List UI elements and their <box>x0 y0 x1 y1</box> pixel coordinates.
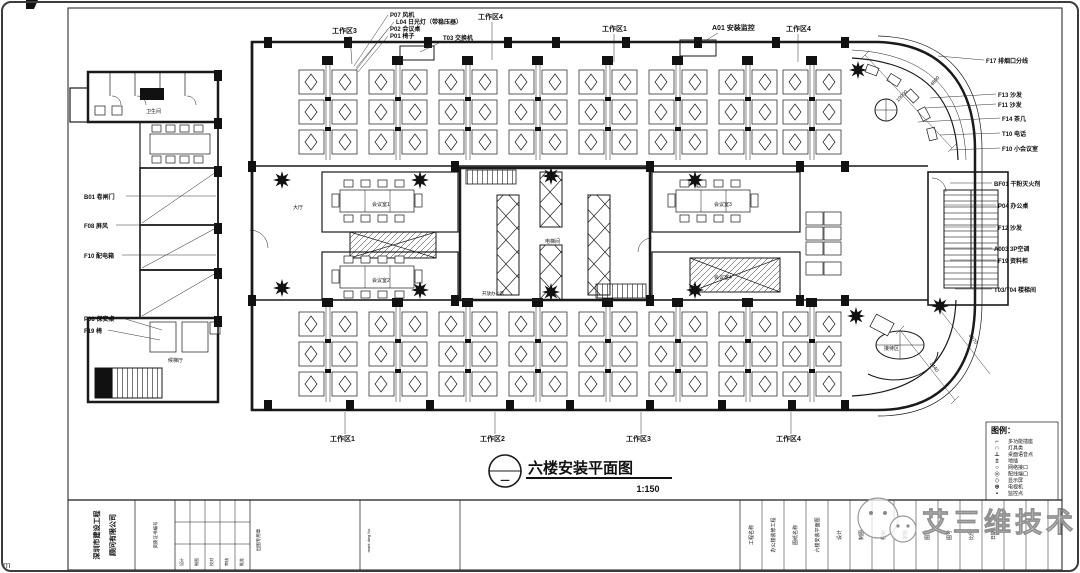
workstation-cluster <box>579 56 637 160</box>
floor-plan-canvas: 10000 4600 2440 2070 工作区3 P07 风机 L04 日光灯… <box>0 0 1080 573</box>
legend-sym-2: ⊥ <box>994 451 999 458</box>
label-reception: 接待区 <box>884 345 899 352</box>
label-lobby: 大厅 <box>293 204 303 211</box>
sign-label-2: 校对 <box>208 558 214 566</box>
workstation-cluster <box>719 56 777 160</box>
conference-table <box>332 256 422 298</box>
watermark: 艾三维技术 <box>858 498 1077 542</box>
workstation-cluster <box>439 56 497 160</box>
callout-l04: L04 日光灯（带稳压器） <box>396 18 462 26</box>
workstation-cluster <box>509 298 567 402</box>
callout-f12: F12 沙发 <box>998 224 1022 232</box>
label-meeting4: 会议室4 <box>714 274 732 281</box>
callout-f19-cabinet: F19 资料柜 <box>998 257 1028 265</box>
sign-label-1: 制图 <box>193 558 199 566</box>
callout-f10-room: F10 小会议室 <box>1002 145 1038 153</box>
dim-4600: 4600 <box>929 75 941 87</box>
workstation-cluster <box>439 298 497 402</box>
callout-t03-switch: T03 交换机 <box>443 34 473 42</box>
callout-p01: P01 椅子 <box>390 32 414 40</box>
tb-field-4: 设计 <box>836 530 843 540</box>
label-meeting3: 会议室3 <box>714 201 732 208</box>
callout-top-workzone4b: 工作区4 <box>786 24 811 33</box>
left-wing <box>70 72 220 402</box>
workstation-cluster <box>299 56 357 160</box>
callout-a01-monitor: A01 安装监控 <box>712 23 755 32</box>
workstation-cluster <box>579 298 637 402</box>
legend-label-6: 显示屏 <box>1008 478 1023 484</box>
workstations-top <box>299 56 841 160</box>
callout-p04: P04 办公桌 <box>998 202 1028 210</box>
legend-sym-7: ⊕ <box>994 485 999 491</box>
callout-f13: F13 沙发 <box>998 91 1022 99</box>
elevator-core <box>460 168 650 300</box>
legend-label-2: 桌面语音点 <box>1008 451 1033 458</box>
watermark-text: 艾三维技术 <box>922 508 1077 538</box>
legend-label-4: 网络接口 <box>1008 464 1028 471</box>
floor-plan-screenshot: 10000 4600 2440 2070 工作区3 P07 风机 L04 日光灯… <box>0 0 1080 573</box>
workstation-cluster <box>649 298 707 402</box>
legend: 图例： ⌐ 多功能插座 ∩ 灯具类 ⊥ 桌面语音点 ± 地插 ○ 网络接口 ◎ … <box>986 422 1058 500</box>
legend-label-8: 监控点 <box>1008 490 1023 497</box>
label-meeting2: 会议室2 <box>372 277 390 284</box>
sign-label-0: 设计 <box>178 558 184 566</box>
callout-f19-chair: F19 椅 <box>84 327 102 335</box>
callout-top-workzone4a: 工作区4 <box>478 12 503 21</box>
legend-label-1: 灯具类 <box>1008 445 1023 452</box>
corner-mark: m <box>3 560 11 570</box>
meeting-rooms-right <box>652 172 841 300</box>
sign-label-3: 审核 <box>223 558 229 566</box>
callout-f10-box: F10 配电箱 <box>84 252 114 260</box>
legend-label-3: 地插 <box>1008 458 1018 465</box>
workstation-cluster <box>719 298 777 402</box>
callout-t03-t04: T03/T04 楼梯间 <box>994 286 1036 294</box>
conference-table <box>332 180 422 222</box>
legend-label-7: 电视机 <box>1008 484 1023 491</box>
mark-label: mark dwg No. <box>366 528 371 553</box>
workstation-cluster <box>299 298 357 402</box>
legend-sym-5: ◎ <box>994 472 999 478</box>
callout-p07: P07 风机 <box>390 11 414 19</box>
label-open-office: 开放办公区 <box>482 290 505 297</box>
title-scale: 1:150 <box>636 484 659 494</box>
legend-sym-4: ○ <box>995 465 999 471</box>
callout-t10: T10 电话 <box>1002 130 1026 138</box>
workstations-bottom <box>299 298 841 402</box>
meeting-rooms-left <box>322 172 458 300</box>
company-name-line2: 顾问有限公司 <box>108 514 117 556</box>
workstation-cluster <box>369 56 427 160</box>
callout-bf01: BF01 干粉灭火剂 <box>994 180 1040 188</box>
page-title: 六楼安装平面图 <box>528 459 633 477</box>
legend-header: 图例： <box>991 425 1015 435</box>
callout-f17: F17 排烟口分线 <box>986 57 1028 65</box>
callout-bottom-workzone1: 工作区1 <box>330 434 355 443</box>
callout-a003: A003 3P空调 <box>994 245 1029 253</box>
corner-fold-mark <box>26 0 38 9</box>
title-bubble-mark: 一 <box>500 476 509 486</box>
legend-sym-6: ◇ <box>995 478 1000 484</box>
workstation-cluster <box>783 56 841 160</box>
callout-bottom-workzone3: 工作区3 <box>626 434 651 443</box>
callouts-bottom: 工作区1 工作区2 工作区3 工作区4 <box>330 412 801 443</box>
label-elevator-hall: 电梯间 <box>545 238 560 245</box>
label-toilet: 卫生间 <box>146 108 161 115</box>
tb-field-1: 办公楼装修工程 <box>770 517 777 552</box>
drawing-title: 一 六楼安装平面图 1:150 <box>489 455 672 494</box>
legend-sym-1: ∩ <box>995 446 999 452</box>
small-conference-room <box>140 122 218 168</box>
legend-sym-8: ▪ <box>996 491 998 497</box>
right-cap <box>852 50 1008 396</box>
legend-label-5: 配线端口 <box>1008 471 1028 478</box>
callout-b01: B01 卷闸门 <box>84 193 115 201</box>
workstation-cluster <box>509 56 567 160</box>
tb-field-3: 六楼安装平面图 <box>814 517 821 552</box>
callout-top-workzone1: 工作区1 <box>602 24 627 33</box>
conference-table <box>668 180 758 222</box>
tb-field-2: 图纸名称 <box>792 525 799 545</box>
legend-sym-3: ± <box>995 459 999 465</box>
legend-sym-0: ⌐ <box>995 439 999 445</box>
workstation-cluster <box>649 56 707 160</box>
legend-label-0: 多功能插座 <box>1008 438 1033 445</box>
callout-p08: P08 保安桌 <box>84 315 114 323</box>
stamp-label: 出图专用章 <box>255 528 262 551</box>
callout-f08: F08 屏风 <box>84 222 108 230</box>
workstation-cluster <box>783 298 841 402</box>
callout-f11: F11 沙发 <box>998 101 1022 109</box>
machine-rooms <box>140 168 218 318</box>
cert-number-label: 资质证书编号 <box>152 521 159 548</box>
workstation-cluster <box>369 298 427 402</box>
company-name-line1: 深圳市建设工程 <box>92 511 101 560</box>
security-area <box>88 318 220 402</box>
callout-f14: F14 茶几 <box>1002 115 1026 123</box>
callout-bottom-workzone4: 工作区4 <box>776 434 801 443</box>
tb-field-0: 工程名称 <box>748 525 755 545</box>
label-meeting1: 会议室1 <box>372 201 390 208</box>
callout-top-workzone3: 工作区3 <box>332 26 357 35</box>
callout-bottom-workzone2: 工作区2 <box>480 434 505 443</box>
callout-p02: P02 会议桌 <box>390 25 420 33</box>
label-lift-lobby: 候梯厅 <box>168 357 183 364</box>
sign-label-4: 批准 <box>238 558 244 566</box>
wechat-icon <box>858 498 916 542</box>
